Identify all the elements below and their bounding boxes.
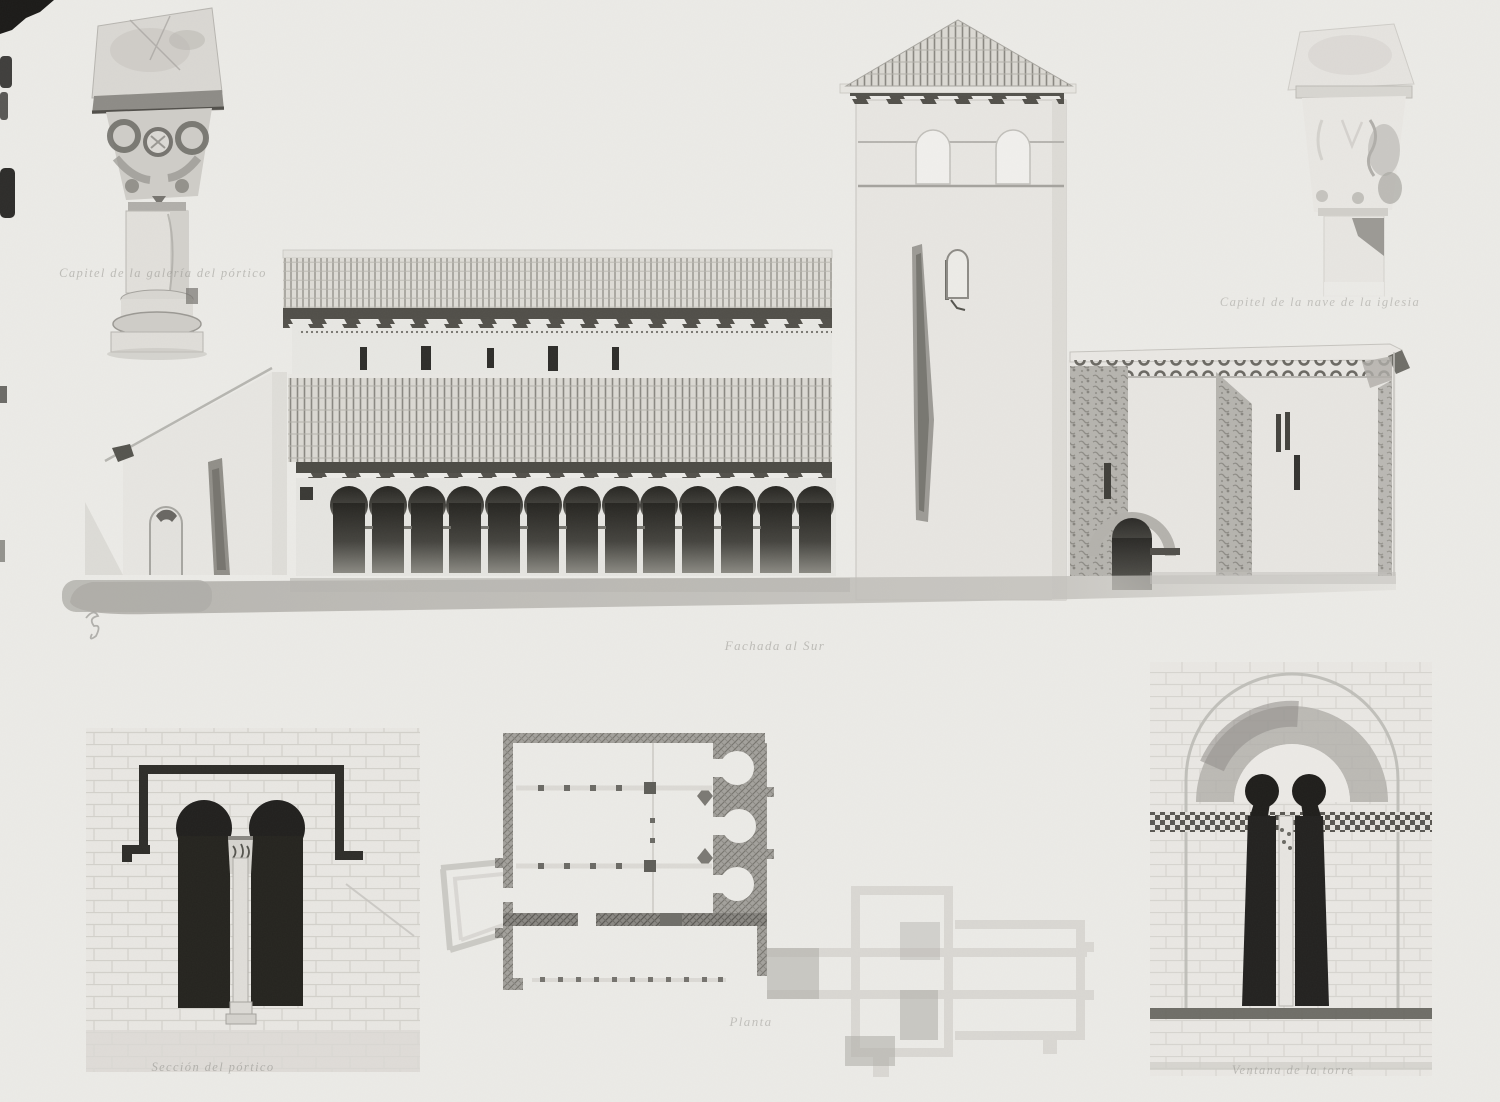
paper-grain xyxy=(0,0,1500,1102)
plate-drawing: Capitel de la galería del pórtico Capite… xyxy=(0,0,1500,1102)
scanned-plate: Capitel de la galería del pórtico Capite… xyxy=(0,0,1500,1102)
